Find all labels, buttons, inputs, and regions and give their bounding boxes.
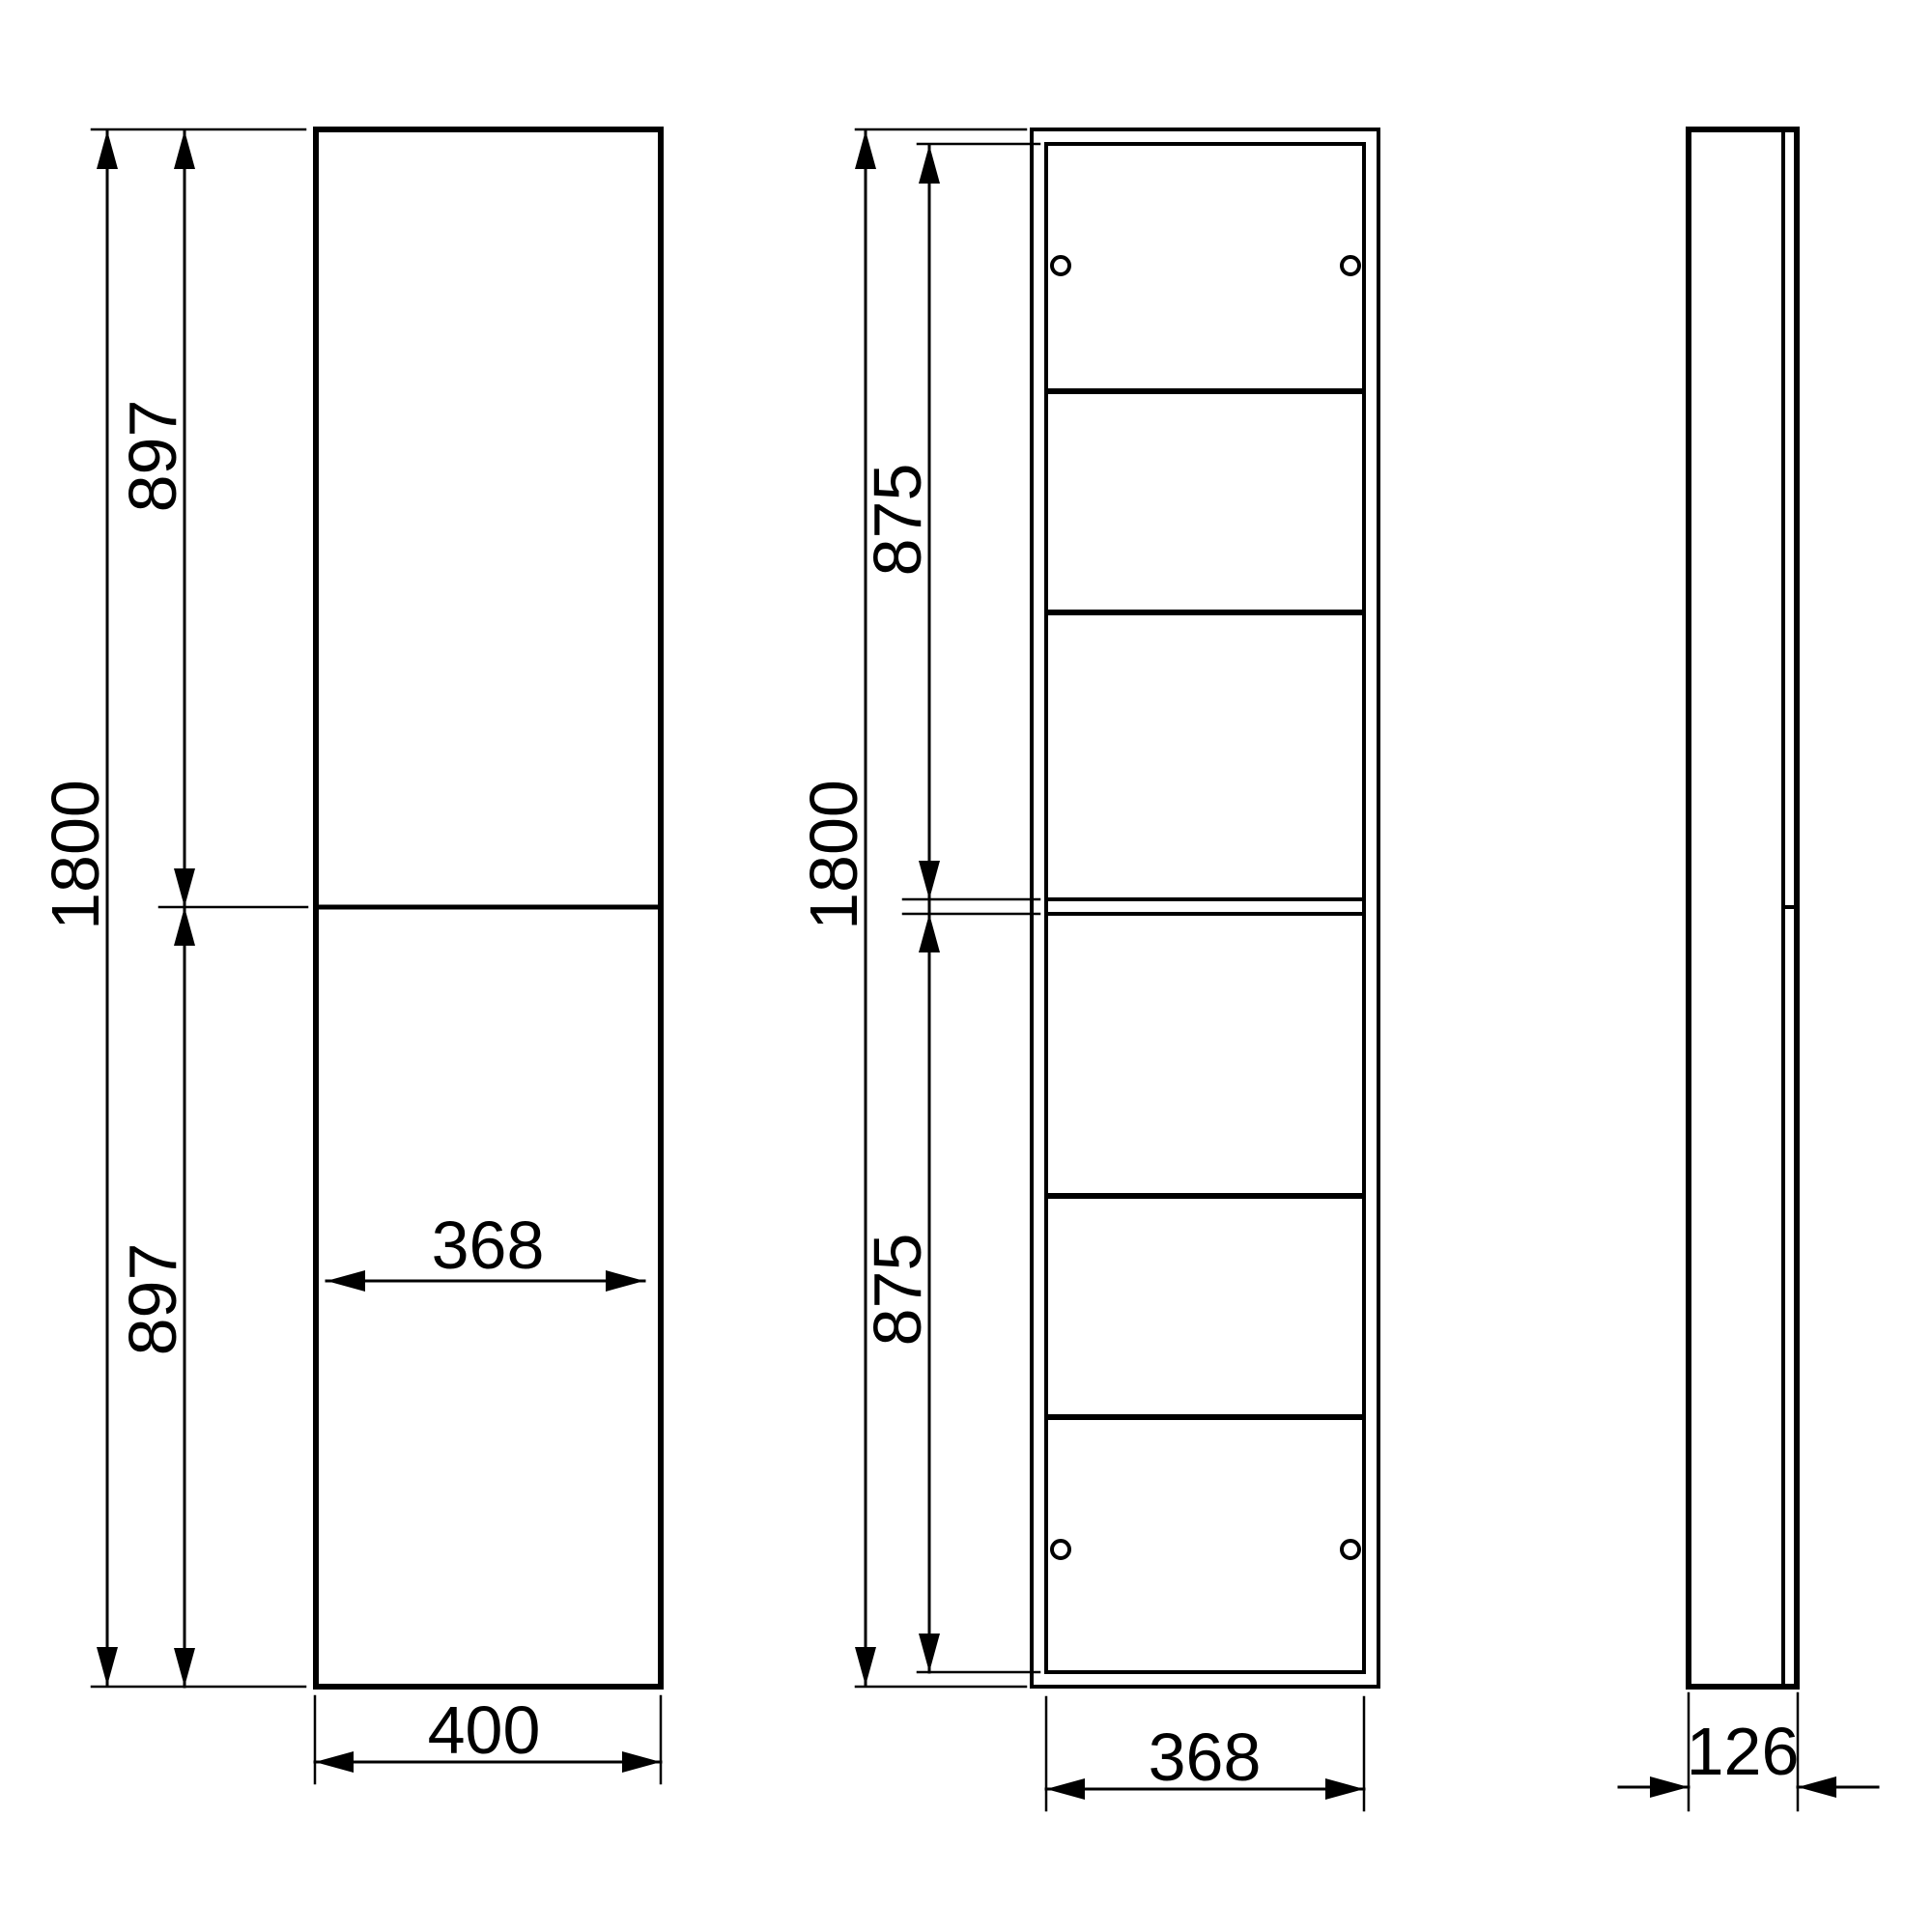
technical-drawing: 368 1800 897 897 400 <box>0 0 1932 1932</box>
front-view: 368 <box>316 129 661 1687</box>
pin-hole <box>1342 1541 1359 1558</box>
internal-view-outer-outline <box>1032 129 1378 1687</box>
dim-label-upper-door-height: 897 <box>115 400 190 513</box>
arrowhead-right-icon <box>1325 1778 1364 1800</box>
arrowhead-down-icon <box>174 1648 195 1687</box>
internal-view <box>1032 129 1378 1687</box>
dim-label-front-total-width: 400 <box>428 1692 541 1768</box>
shelf-line <box>1046 610 1364 615</box>
pin-hole <box>1052 257 1069 274</box>
side-view <box>1689 129 1797 1687</box>
pin-hole <box>1342 257 1359 274</box>
arrowhead-up-icon <box>174 130 195 169</box>
arrowhead-down-icon <box>855 1647 876 1686</box>
shelf-line <box>1046 1193 1364 1199</box>
dim-label-front-inner-width: 368 <box>432 1207 545 1283</box>
arrowhead-left-icon <box>315 1751 354 1773</box>
shelf-line <box>1046 388 1364 394</box>
drawing-canvas: 368 1800 897 897 400 <box>0 0 1932 1932</box>
dim-label-upper-compartment: 875 <box>860 464 935 577</box>
front-width-dimension: 400 <box>315 1692 661 1783</box>
arrowhead-left-icon <box>1046 1778 1085 1800</box>
arrowhead-right-icon <box>622 1751 661 1773</box>
internal-height-dimensions: 1800 875 875 <box>796 129 1039 1687</box>
shelf-line <box>1046 1414 1364 1420</box>
dim-label-internal-total-height: 1800 <box>796 780 871 930</box>
arrowhead-down-icon <box>919 1634 940 1672</box>
arrowhead-right-icon <box>1650 1776 1689 1798</box>
arrowhead-up-icon <box>174 907 195 946</box>
arrowhead-up-icon <box>97 130 118 169</box>
arrowhead-up-icon <box>919 914 940 952</box>
dim-label-lower-door-height: 897 <box>115 1243 190 1356</box>
side-view-outline <box>1689 129 1797 1687</box>
arrowhead-down-icon <box>174 868 195 907</box>
arrowhead-down-icon <box>919 861 940 899</box>
dim-label-depth: 126 <box>1687 1714 1800 1789</box>
dim-label-front-total-height: 1800 <box>38 780 113 930</box>
arrowhead-left-icon <box>1798 1776 1836 1798</box>
dim-label-internal-inner-width: 368 <box>1149 1719 1262 1795</box>
arrowhead-up-icon <box>855 130 876 169</box>
front-height-dimensions: 1800 897 897 <box>38 129 307 1687</box>
pin-hole <box>1052 1541 1069 1558</box>
dim-label-lower-compartment: 875 <box>860 1234 935 1347</box>
side-depth-dimension: 126 <box>1619 1693 1878 1810</box>
arrowhead-up-icon <box>919 145 940 184</box>
internal-width-dimension: 368 <box>1046 1697 1364 1810</box>
arrowhead-down-icon <box>97 1647 118 1686</box>
